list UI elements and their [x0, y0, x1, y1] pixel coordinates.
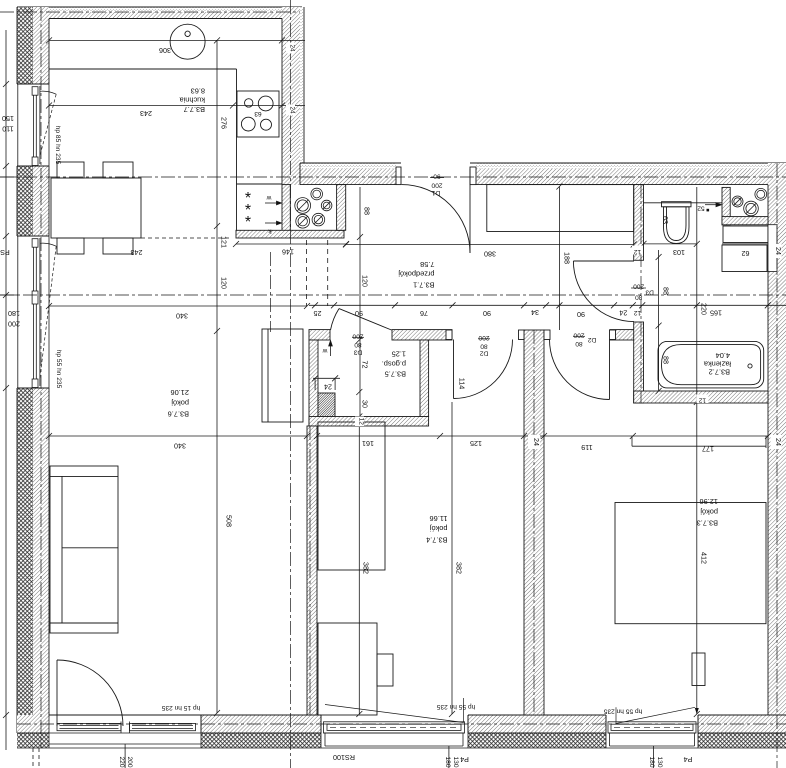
svg-text:hp 55 hn 235: hp 55 hn 235 — [436, 703, 475, 710]
svg-text:63: 63 — [254, 110, 262, 117]
svg-text:200: 200 — [633, 283, 644, 290]
svg-text:382: 382 — [455, 562, 464, 574]
svg-text:p.gosp.: p.gosp. — [382, 360, 406, 369]
svg-text:90: 90 — [577, 310, 585, 319]
svg-text:120: 120 — [361, 275, 370, 287]
svg-text:80: 80 — [575, 340, 583, 347]
svg-text:12: 12 — [634, 309, 642, 316]
svg-text:340: 340 — [176, 312, 188, 321]
svg-text:24: 24 — [774, 247, 783, 255]
svg-text:D3: D3 — [645, 288, 654, 295]
svg-text:412: 412 — [700, 552, 709, 564]
svg-text:80: 80 — [354, 341, 362, 348]
svg-text:12.96: 12.96 — [700, 497, 719, 506]
svg-text:90: 90 — [483, 309, 491, 318]
svg-text:161: 161 — [362, 439, 374, 448]
svg-text:24: 24 — [289, 44, 296, 52]
svg-text:w: w — [266, 194, 272, 201]
svg-text:180: 180 — [648, 756, 655, 767]
svg-text:D3: D3 — [353, 349, 362, 356]
svg-text:B3.7.3: B3.7.3 — [697, 519, 718, 528]
svg-text:pokój: pokój — [171, 399, 189, 408]
svg-text:306: 306 — [159, 46, 171, 55]
svg-text:12: 12 — [699, 397, 707, 404]
svg-text:4.04: 4.04 — [716, 351, 730, 360]
svg-text:80: 80 — [635, 294, 643, 301]
svg-text:88: 88 — [363, 207, 372, 215]
svg-text:72: 72 — [361, 361, 370, 369]
svg-text:200: 200 — [8, 320, 20, 329]
svg-text:52: 52 — [697, 205, 705, 212]
svg-text:63: 63 — [661, 216, 670, 224]
svg-text:D1: D1 — [431, 189, 440, 196]
svg-text:165: 165 — [710, 309, 722, 318]
svg-text:7.58: 7.58 — [420, 260, 434, 269]
svg-text:P4: P4 — [684, 755, 693, 764]
svg-text:1.25: 1.25 — [392, 350, 406, 359]
svg-text:PS: PS — [0, 248, 10, 257]
svg-text:P4: P4 — [460, 755, 469, 764]
svg-text:146: 146 — [282, 248, 294, 257]
svg-text:90: 90 — [433, 173, 441, 180]
svg-text:90: 90 — [355, 309, 363, 318]
svg-text:30: 30 — [361, 400, 370, 408]
svg-text:130: 130 — [452, 756, 459, 767]
svg-text:382: 382 — [362, 562, 371, 574]
svg-text:119: 119 — [581, 443, 592, 452]
svg-text:RS100: RS100 — [333, 753, 355, 762]
svg-text:12: 12 — [634, 248, 642, 255]
svg-text:24: 24 — [774, 438, 783, 446]
svg-text:11.66: 11.66 — [430, 514, 448, 523]
svg-text:200: 200 — [478, 334, 489, 341]
svg-text:243: 243 — [140, 109, 152, 118]
svg-text:pokój: pokój — [429, 524, 447, 533]
svg-text:B3.7.7: B3.7.7 — [184, 105, 205, 114]
svg-text:508: 508 — [225, 515, 234, 527]
svg-text:200: 200 — [573, 332, 584, 339]
svg-text:125: 125 — [470, 439, 482, 448]
svg-text:34: 34 — [531, 308, 539, 317]
svg-text:8.63: 8.63 — [191, 87, 205, 96]
svg-text:200: 200 — [431, 182, 442, 189]
svg-text:380: 380 — [484, 250, 496, 259]
svg-text:pokój: pokój — [700, 508, 718, 517]
svg-text:276: 276 — [220, 117, 229, 129]
svg-text:w: w — [322, 347, 328, 354]
svg-text:180: 180 — [8, 309, 20, 318]
svg-text:B3.7.2: B3.7.2 — [709, 368, 730, 377]
svg-text:62: 62 — [742, 249, 750, 258]
svg-text:24: 24 — [532, 438, 541, 446]
svg-text:188: 188 — [563, 252, 572, 264]
svg-text:340: 340 — [174, 442, 186, 451]
svg-text:220: 220 — [700, 303, 709, 315]
svg-text:200: 200 — [352, 333, 363, 340]
svg-text:*: * — [245, 214, 251, 231]
svg-text:76: 76 — [420, 309, 428, 318]
svg-text:220: 220 — [118, 756, 125, 767]
svg-text:D2: D2 — [479, 350, 488, 357]
svg-text:24: 24 — [619, 309, 627, 318]
svg-text:D2: D2 — [587, 336, 596, 343]
svg-text:hp 55 hn 235: hp 55 hn 235 — [55, 350, 62, 389]
svg-text:103: 103 — [673, 248, 685, 257]
svg-text:243: 243 — [131, 248, 143, 257]
svg-text:B3.7.4: B3.7.4 — [426, 536, 447, 545]
svg-text:hp 85 hn 235: hp 85 hn 235 — [54, 126, 61, 165]
svg-text:25: 25 — [314, 309, 322, 318]
svg-text:88: 88 — [662, 356, 671, 364]
svg-text:12: 12 — [358, 418, 365, 426]
svg-text:120: 120 — [220, 277, 229, 289]
svg-text:B3.7.1: B3.7.1 — [413, 280, 434, 289]
svg-text:B3.7.6: B3.7.6 — [168, 410, 189, 419]
svg-text:B3.7.5: B3.7.5 — [385, 370, 406, 379]
svg-text:21.06: 21.06 — [171, 388, 190, 397]
svg-text:180: 180 — [444, 756, 451, 767]
svg-text:130: 130 — [656, 756, 663, 767]
svg-text:24: 24 — [324, 383, 332, 392]
svg-text:80: 80 — [480, 343, 488, 350]
svg-text:24: 24 — [289, 106, 296, 114]
svg-text:przedpokój: przedpokój — [398, 270, 435, 279]
svg-text:kuchnia: kuchnia — [179, 96, 205, 105]
svg-text:hp 55 hn 235: hp 55 hn 235 — [603, 708, 642, 715]
svg-text:200: 200 — [126, 756, 133, 767]
svg-text:150: 150 — [2, 114, 14, 123]
svg-text:114: 114 — [458, 378, 467, 389]
svg-text:88: 88 — [662, 287, 671, 295]
svg-text:121: 121 — [220, 236, 229, 248]
svg-text:hp 15 hn 235: hp 15 hn 235 — [161, 704, 200, 711]
svg-text:110: 110 — [2, 125, 13, 134]
svg-text:łazienka: łazienka — [703, 360, 731, 369]
